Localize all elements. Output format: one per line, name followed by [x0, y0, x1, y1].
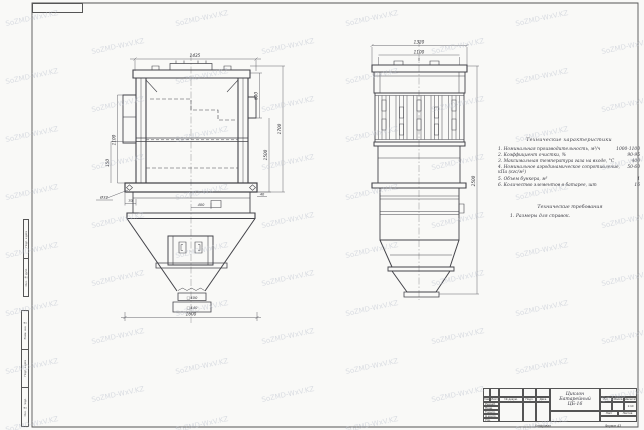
format-label: Формат A3: [605, 424, 621, 428]
org-cell: [600, 416, 637, 422]
spec-row: 5. Объем бункера, м³ 1: [498, 177, 640, 182]
spec-value: 1: [637, 177, 640, 182]
top-left-stamp: [32, 3, 83, 13]
spec-label: 2. Коэффициент очистки, %: [498, 153, 627, 158]
doc-name-line3: ЦБ-16: [568, 402, 583, 407]
notes-title: Технические характеристики: [498, 138, 640, 144]
revision-cell: [536, 388, 550, 397]
dim-label-front-bottom-width: 1600: [186, 312, 197, 317]
dim-label-front-top-width: 1435: [190, 53, 201, 58]
document-name: Циклон Батарейный ЦБ-16: [550, 388, 600, 411]
hole-callout-label: Ø32: [99, 195, 108, 200]
dim-label-base-right: 40: [260, 193, 265, 197]
spec-label: 4. Номинальное аэродинамическое сопротив…: [498, 165, 627, 175]
drawing-sheet: 1435 1600 1100 150 600 1500 1700 40 Ø32 …: [0, 0, 644, 430]
title-block: Изм. Лист № докум. Подп. Дата Разраб. Пр…: [483, 385, 644, 430]
stamp-label: Подп. и дата: [24, 231, 28, 247]
side-view-dimensions: [371, 44, 480, 294]
dim-label-outlet-offset: 400: [198, 203, 206, 207]
front-view: [123, 54, 257, 323]
sig-cell: [536, 402, 550, 422]
row-utv: Утв.: [483, 418, 499, 422]
margin-stamp-group-2: Взам. инв. № Подп. и дата Инв. № подл.: [21, 310, 29, 427]
revision-cell: [483, 388, 490, 397]
spec-label: 5. Объем бункера, м³: [498, 177, 637, 182]
dim-label-side-top-width: 1320: [414, 40, 425, 45]
mass-value: [612, 402, 624, 411]
org-name-cell: [550, 411, 600, 422]
spec-value: 400: [632, 159, 640, 164]
spec-label: 6. Количество элементов в батарее, шт: [498, 183, 634, 188]
flange-square-label: □440: [187, 305, 198, 310]
margin-stamp-cell: Инв. № дубл.: [24, 258, 28, 297]
margin-stamp-cell: Взам. инв. №: [22, 311, 28, 349]
front-view-dim-labels: 1435 1600 1100 150 600 1500 1700 40 Ø32 …: [99, 53, 282, 317]
dim-label-front-left-height: 1100: [112, 134, 117, 145]
spec-row: 4. Номинальное аэродинамическое сопротив…: [498, 165, 640, 175]
spec-row: 1. Номинальная производительность, м³/ч …: [498, 147, 640, 152]
dim-label-side-inner-width: 1100: [414, 50, 425, 55]
side-view: [372, 40, 467, 300]
dim-label-front-inlet-height: 600: [254, 92, 259, 100]
requirement-item: 1. Размеры для справок.: [510, 214, 630, 219]
spec-value: 50-60: [627, 165, 640, 175]
spec-label: 1. Номинальная производительность, м³/ч: [498, 147, 616, 152]
scale-value: 1:10: [624, 402, 637, 411]
technical-characteristics: Технические характеристики 1. Номинальна…: [498, 138, 640, 189]
stamp-label: Инв. № дубл.: [24, 268, 28, 286]
margin-stamp-cell: Инв. № подл.: [22, 387, 28, 426]
dim-label-base-offset: 70: [128, 199, 133, 203]
technical-requirements: Технические требования 1. Размеры для сп…: [510, 205, 630, 219]
margin-stamp-cell: Подп. и дата: [22, 349, 28, 388]
outlet-square-label: □400: [187, 295, 198, 300]
stamp-label: Подп. и дата: [23, 360, 27, 376]
revision-cell: [523, 388, 536, 397]
revision-cell: [490, 388, 499, 397]
dim-label-side-overall-height: 2500: [471, 175, 476, 186]
stamp-label: Инв. № подл.: [23, 398, 27, 416]
spec-label: 3. Максимальная температура газа на вход…: [498, 159, 632, 164]
sig-cell: [523, 402, 536, 422]
sig-cell: [499, 402, 523, 422]
designation-cell: [600, 388, 637, 397]
spec-value: 90-95: [627, 153, 640, 158]
requirements-title: Технические требования: [510, 205, 630, 210]
spec-row: 6. Количество элементов в батарее, шт 16: [498, 183, 640, 188]
spec-row: 2. Коэффициент очистки, % 90-95: [498, 153, 640, 158]
spec-value: 16: [634, 183, 640, 188]
stamp-label: Взам. инв. №: [23, 321, 27, 339]
copied-label: Копировал: [535, 424, 551, 428]
spec-value: 1000-1100: [616, 147, 640, 152]
dim-label-front-overall-height: 1700: [277, 123, 282, 134]
margin-stamp-group-1: Подп. и дата Инв. № дубл.: [23, 219, 29, 297]
side-view-dim-labels: 1320 1100 2500: [414, 40, 476, 187]
revision-cell: [499, 388, 523, 397]
margin-stamp-cell: Подп. и дата: [24, 220, 28, 258]
dim-label-front-left-lower: 150: [105, 159, 110, 167]
spec-row: 3. Максимальная температура газа на вход…: [498, 159, 640, 164]
lit-value: [600, 402, 612, 411]
dim-label-front-body-height: 1500: [263, 149, 268, 160]
